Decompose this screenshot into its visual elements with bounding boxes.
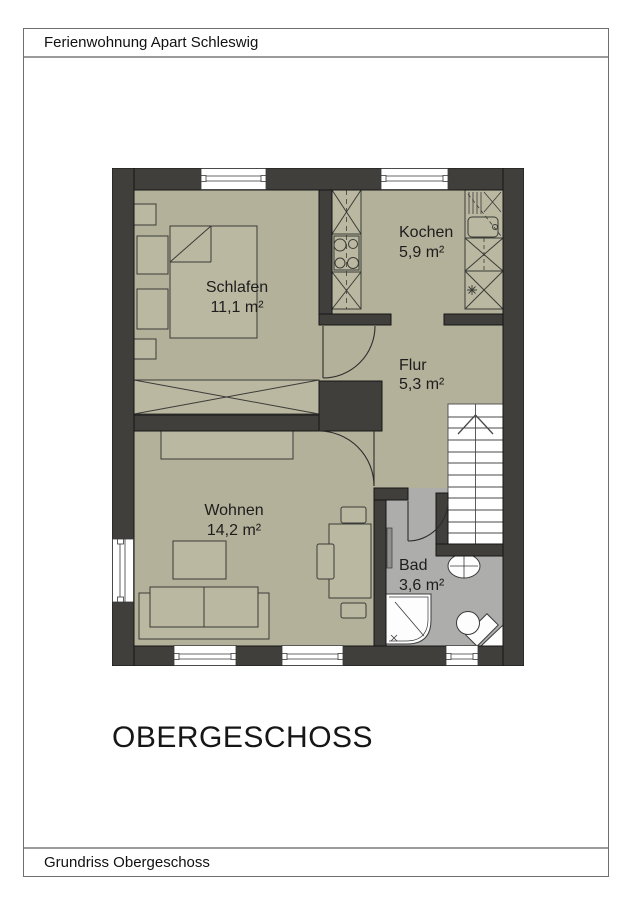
coffee-table: [173, 541, 226, 579]
appliance-star-icon: [467, 285, 477, 295]
nightstand: [137, 236, 168, 274]
drawing-frame: Ferienwohnung Apart Schleswig: [23, 28, 609, 877]
room-area-kochen: 5,9 m²: [399, 244, 445, 261]
wall-core-chunk: [319, 381, 382, 431]
sofa: [139, 587, 269, 639]
footerbar: Grundriss Obergeschoss: [24, 847, 608, 876]
staircase: [448, 404, 503, 544]
nightstand: [137, 289, 168, 329]
room-label-bad: Bad: [399, 557, 427, 574]
wall-top: [112, 168, 524, 190]
window-wohnen-bottom-1: [174, 646, 236, 666]
dining-table: [329, 524, 371, 598]
window-kochen: [381, 169, 448, 190]
room-area-wohnen: 14,2 m²: [207, 522, 262, 539]
window-bad: [446, 646, 478, 666]
room-area-flur: 5,3 m²: [399, 376, 445, 393]
wall-kochen-flur-left: [319, 314, 391, 325]
room-label-kochen: Kochen: [399, 224, 453, 241]
wall-stair-bottom: [436, 544, 503, 556]
window-schlafen: [201, 169, 266, 190]
room-label-flur: Flur: [399, 357, 427, 374]
kitchen-counter-right: [465, 190, 503, 309]
project-title: Ferienwohnung Apart Schleswig: [44, 34, 258, 51]
washbasin-icon: [448, 554, 480, 578]
sideboard: [161, 429, 293, 459]
chair: [317, 544, 334, 579]
kitchen-counter-left: [332, 190, 361, 309]
dresser: [133, 339, 156, 359]
wall-schlafen-wohnen: [134, 415, 319, 431]
shower-icon: [386, 594, 431, 644]
wall-right: [503, 168, 524, 666]
wall-bad-top: [374, 488, 408, 500]
wall-kochen-flur-right: [444, 314, 503, 325]
dresser: [133, 204, 156, 225]
room-area-schlafen: 11,1 m²: [210, 299, 264, 316]
floor-title: OBERGESCHOSS: [112, 721, 373, 755]
room-label-wohnen: Wohnen: [204, 502, 263, 519]
room-area-bad: 3,6 m²: [399, 577, 445, 594]
chair: [341, 507, 366, 523]
wardrobe: [134, 380, 319, 414]
radiator-icon: [387, 528, 392, 568]
chair: [341, 603, 366, 618]
window-wohnen-bottom-2: [282, 646, 343, 666]
room-label-schlafen: Schlafen: [206, 279, 268, 296]
floor-plan: Schlafen 11,1 m² Kochen 5,9 m² Flur 5,3 …: [112, 168, 524, 666]
wall-schlafen-kochen: [319, 190, 332, 314]
plan-caption: Grundriss Obergeschoss: [44, 854, 210, 871]
titlebar: Ferienwohnung Apart Schleswig: [24, 29, 608, 58]
window-wohnen-left: [113, 539, 134, 602]
sheet: Ferienwohnung Apart Schleswig: [0, 0, 640, 906]
wall-wohnen-bad: [374, 488, 386, 646]
